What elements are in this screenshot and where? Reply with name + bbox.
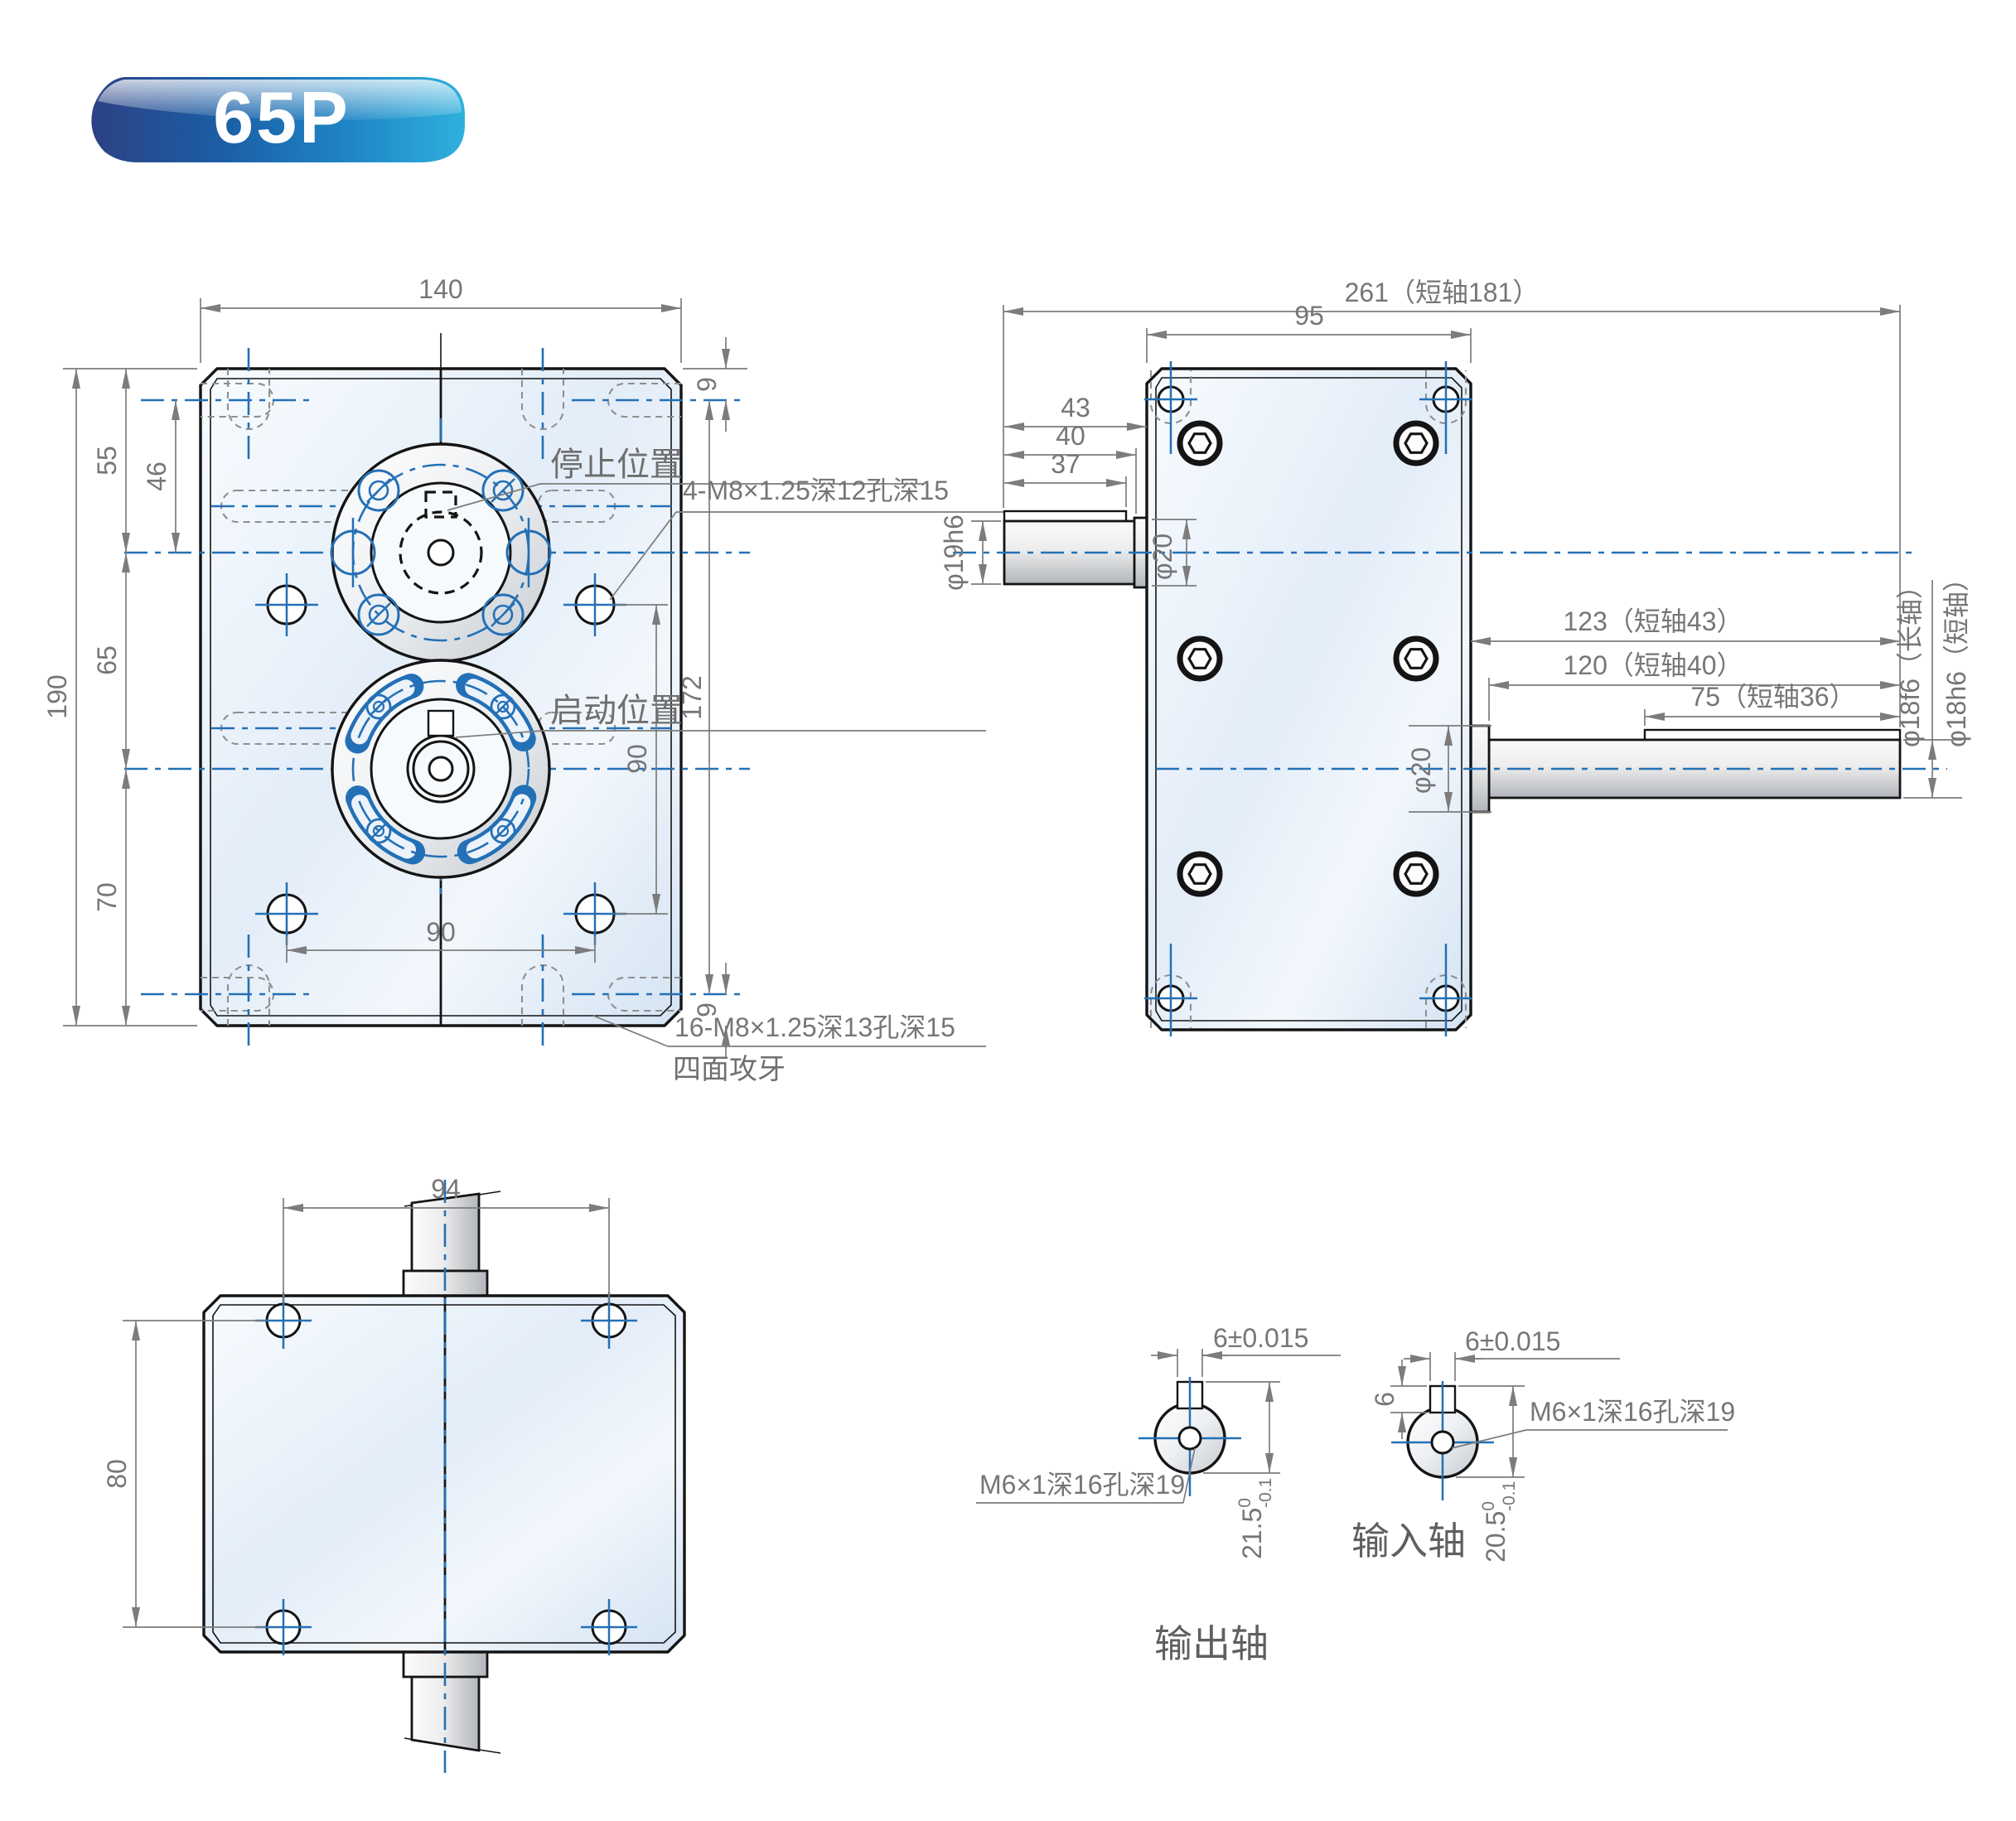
label-start-position: 启动位置 bbox=[550, 693, 683, 729]
label-input-thread: M6×1深16孔深19 bbox=[1530, 1397, 1735, 1427]
dim-front-height: 190 bbox=[42, 674, 72, 718]
input-key-profile bbox=[1004, 511, 1126, 521]
dim-front-width: 140 bbox=[418, 274, 462, 304]
side-view: 261（短轴181） 95 43 40 37 φ19h6 φ20 123（短轴4… bbox=[939, 278, 1971, 1036]
start-flange bbox=[332, 660, 549, 877]
dim-in3: 37 bbox=[1051, 449, 1081, 479]
label-stop-position: 停止位置 bbox=[550, 447, 683, 483]
dim-output-key: 6±0.015 bbox=[1213, 1323, 1308, 1353]
dim-out2: 120（短轴40） bbox=[1564, 650, 1743, 680]
dim-input-height: 20.50-0.1 bbox=[1479, 1481, 1519, 1563]
drawing-page: 65P bbox=[0, 0, 2016, 1821]
dim-input-key-depth: 6 bbox=[1370, 1392, 1400, 1407]
dim-mid: 65 bbox=[92, 645, 122, 675]
label-output-hub-diameter: φ20 bbox=[1406, 747, 1436, 794]
dim-in2: 40 bbox=[1056, 421, 1085, 451]
dim-side-body: 95 bbox=[1294, 301, 1324, 331]
label-output-dia-short: φ18h6（短轴） bbox=[1941, 565, 1971, 747]
dim-output-height: 21.50-0.1 bbox=[1235, 1478, 1275, 1559]
label-tap-front: 4-M8×1.25深12孔深15 bbox=[683, 476, 949, 505]
output-key-profile bbox=[1645, 730, 1900, 740]
dim-bottom: 70 bbox=[92, 882, 122, 912]
hex-socket-screw bbox=[1396, 423, 1436, 463]
hex-socket-screw bbox=[1180, 423, 1220, 463]
badge-label: 65P bbox=[213, 76, 351, 158]
dim-top-height: 80 bbox=[102, 1459, 132, 1489]
technical-drawing: 65P bbox=[0, 0, 2016, 1821]
dim-hole-hspan: 90 bbox=[426, 917, 456, 947]
dim-out3: 75（短轴36） bbox=[1690, 682, 1855, 712]
hex-socket-screw bbox=[1396, 639, 1436, 679]
keyway bbox=[428, 711, 453, 736]
output-shaft-detail: 6±0.015 21.50-0.1 M6×1深16孔深19 输出轴 bbox=[976, 1323, 1341, 1665]
label-tap-note: 四面攻牙 bbox=[673, 1054, 786, 1085]
side-body bbox=[1147, 369, 1471, 1030]
front-view: 140 190 55 65 70 46 9 172 9 90 90 停止位置 启… bbox=[42, 274, 1023, 1085]
label-output-dia-long: φ18f6（长轴） bbox=[1895, 572, 1925, 747]
caption-output-shaft: 输出轴 bbox=[1154, 1622, 1269, 1665]
label-tap-side: 16-M8×1.25深13孔深15 bbox=[674, 1012, 955, 1042]
dim-top-width: 94 bbox=[431, 1174, 461, 1204]
label-output-thread: M6×1深16孔深19 bbox=[979, 1470, 1185, 1500]
label-input-diameter: φ19h6 bbox=[939, 514, 969, 591]
dim-top-inner: 46 bbox=[142, 461, 172, 491]
caption-input-shaft: 输入轴 bbox=[1351, 1519, 1466, 1563]
hex-socket-screw bbox=[1180, 639, 1220, 679]
top-view: 94 80 bbox=[102, 1174, 684, 1773]
dim-side-total: 261（短轴181） bbox=[1345, 278, 1540, 307]
hex-socket-screw bbox=[1396, 854, 1436, 894]
stop-flange bbox=[331, 444, 550, 661]
hex-socket-screw bbox=[1180, 854, 1220, 894]
dim-top: 55 bbox=[92, 446, 122, 476]
dim-out1: 123（短轴43） bbox=[1564, 606, 1743, 636]
input-shaft-detail: 6±0.015 6 M6×1深16孔深19 20.50-0.1 输入轴 bbox=[1351, 1326, 1735, 1563]
model-badge: 65P bbox=[91, 76, 465, 162]
dim-edge-top: 9 bbox=[692, 377, 722, 392]
label-input-hub-diameter: φ20 bbox=[1148, 534, 1177, 580]
dim-hole-vspan: 90 bbox=[622, 744, 652, 774]
dim-in1: 43 bbox=[1061, 393, 1090, 423]
dim-input-key: 6±0.015 bbox=[1465, 1326, 1560, 1356]
